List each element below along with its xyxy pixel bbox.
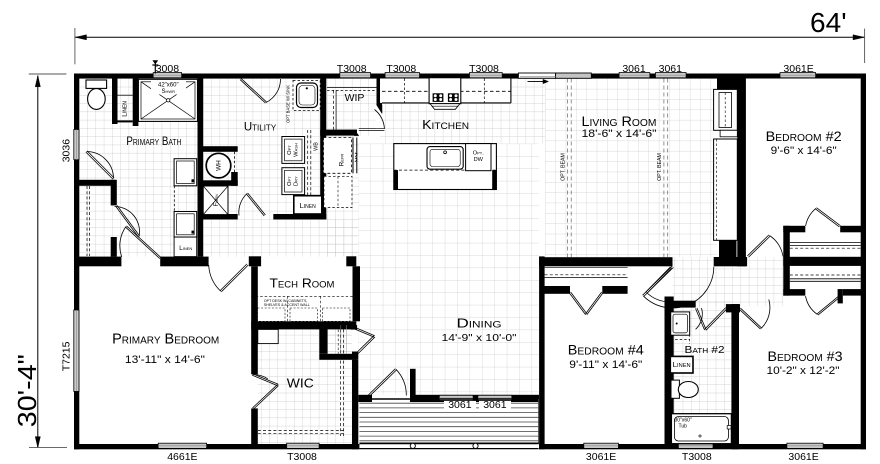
svg-text:30'-4": 30'-4" (12, 354, 42, 427)
svg-text:Bedroom #2: Bedroom #2 (766, 128, 842, 144)
svg-text:OPT. BEAM: OPT. BEAM (657, 153, 663, 181)
svg-text:WH: WH (216, 160, 223, 171)
svg-text:Refr: Refr (339, 154, 346, 167)
svg-text:Shwr: Shwr (162, 89, 176, 95)
svg-text:Furn: Furn (214, 194, 220, 206)
svg-text:3061E: 3061E (783, 63, 813, 75)
svg-text:Linen: Linen (122, 101, 129, 117)
svg-text:Linen: Linen (673, 362, 691, 369)
svg-text:OPT BASE W/ SINK: OPT BASE W/ SINK (285, 85, 290, 123)
svg-text:T3008: T3008 (337, 63, 367, 75)
svg-text:T3008: T3008 (287, 451, 317, 463)
svg-text:WIP: WIP (345, 92, 365, 104)
svg-text:OPT. BEAM: OPT. BEAM (560, 153, 566, 181)
svg-text:3061E: 3061E (788, 451, 818, 463)
svg-text:Dining: Dining (457, 316, 502, 331)
svg-text:3061: 3061 (483, 399, 507, 411)
svg-text:10'-2" x 12'-2": 10'-2" x 12'-2" (767, 365, 840, 377)
svg-text:Opt.: Opt. (473, 151, 484, 157)
svg-text:T3008: T3008 (469, 63, 499, 75)
svg-text:9'-6" x 14'-6": 9'-6" x 14'-6" (771, 145, 837, 157)
svg-text:T3008: T3008 (386, 63, 416, 75)
svg-text:64': 64' (810, 7, 847, 38)
svg-text:3061: 3061 (659, 63, 683, 75)
svg-text:Primary Bedroom: Primary Bedroom (112, 332, 219, 348)
svg-text:DW: DW (474, 157, 484, 163)
svg-text:Linen: Linen (179, 245, 192, 252)
svg-text:WB: WB (314, 142, 320, 151)
svg-text:14'-9" x 10'-0": 14'-9" x 10'-0" (442, 332, 517, 344)
svg-text:Bedroom #3: Bedroom #3 (768, 348, 843, 364)
svg-text:Utility: Utility (244, 122, 277, 134)
svg-text:Bath #2: Bath #2 (685, 345, 726, 356)
svg-text:4661E: 4661E (167, 451, 197, 463)
svg-text:3061: 3061 (448, 399, 472, 411)
svg-text:T3008: T3008 (682, 451, 712, 463)
svg-text:SHELVES & ACCENT WALL: SHELVES & ACCENT WALL (264, 303, 310, 307)
svg-text:Opt: Opt (287, 145, 293, 155)
svg-text:3008: 3008 (156, 63, 180, 75)
svg-text:Kitchen: Kitchen (422, 118, 469, 132)
svg-text:WIC: WIC (287, 376, 314, 391)
svg-text:9'-11" x 14'-6": 9'-11" x 14'-6" (569, 359, 642, 371)
svg-text:Living Room: Living Room (582, 113, 657, 129)
svg-text:Opt: Opt (287, 176, 293, 186)
svg-text:3061: 3061 (622, 63, 646, 75)
svg-text:13'-11" x 14'-6": 13'-11" x 14'-6" (125, 354, 205, 366)
svg-text:T7215: T7215 (60, 341, 72, 371)
svg-text:Linen: Linen (300, 201, 316, 210)
svg-text:Dry: Dry (293, 176, 299, 186)
svg-text:3036: 3036 (60, 139, 72, 163)
svg-text:Tub: Tub (679, 424, 688, 430)
svg-text:3061E: 3061E (586, 451, 616, 463)
svg-text:42"x60": 42"x60" (158, 83, 179, 89)
svg-text:Tech Room: Tech Room (270, 276, 335, 291)
svg-text:Primary Bath: Primary Bath (126, 136, 181, 148)
svg-text:Bedroom #4: Bedroom #4 (568, 342, 644, 358)
svg-text:18'-6" x 14'-6": 18'-6" x 14'-6" (582, 128, 657, 140)
svg-text:Wash: Wash (293, 143, 299, 157)
